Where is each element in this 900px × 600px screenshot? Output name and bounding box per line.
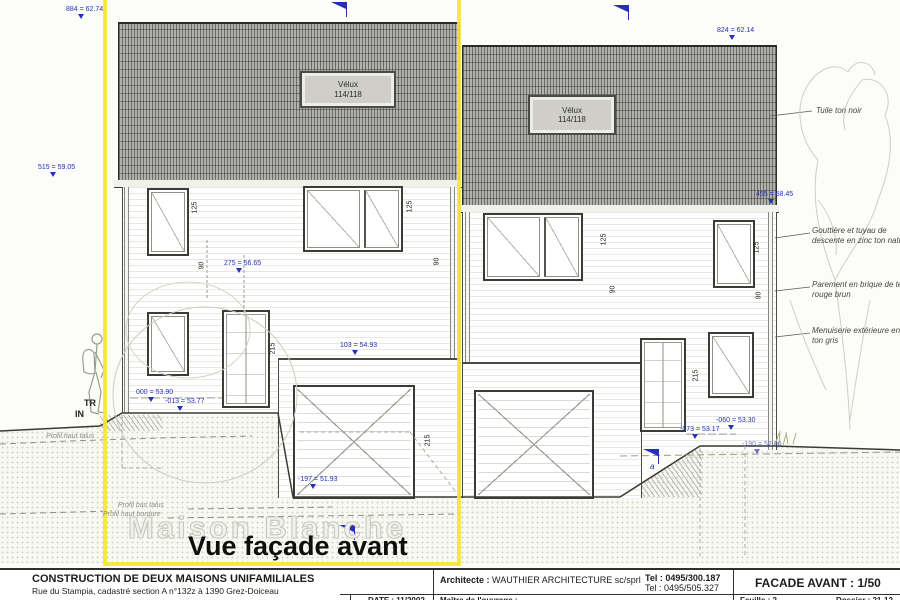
witness-lines — [207, 240, 244, 315]
annotation-roof-tile: Tuile ton noir — [816, 106, 900, 116]
dim-label: 125 — [601, 231, 608, 249]
dim-label: 215 — [270, 340, 277, 358]
level-arrow-icon — [728, 425, 734, 430]
level-marker-garage-floor: -197 = 51.93 — [298, 476, 338, 489]
level-marker-right-1: -060 = 53.30 — [716, 417, 756, 430]
client-label: Maître de l'ouvrage : — [440, 596, 517, 600]
level-marker-ridge-right: 824 = 62.14 — [717, 27, 754, 40]
level-marker-right-3: -190 = 52.00 — [742, 441, 782, 454]
profile-label-haut-talus: Profil haut talus — [46, 433, 94, 440]
dim-label: 215 — [425, 432, 432, 450]
level-arrow-icon — [310, 484, 316, 489]
level-arrow-icon — [729, 35, 735, 40]
dim-label: 125 — [192, 199, 199, 217]
level-marker-garage-roof: 103 = 54.93 — [340, 342, 377, 355]
highlight-line-bottom — [103, 562, 461, 566]
dim-label: 125 — [407, 198, 414, 216]
dim-label: 90 — [756, 287, 763, 305]
dim-label: 125 — [754, 239, 761, 257]
flag-marker-icon — [612, 5, 629, 21]
foundation-dashes-right — [700, 446, 745, 556]
foundation-dashes-left — [122, 415, 456, 492]
project-title: CONSTRUCTION DE DEUX MAISONS UNIFAMILIAL… — [32, 573, 314, 585]
architect-label: Architecte : — [440, 575, 490, 585]
dim-label: 215 — [693, 367, 700, 385]
highlight-line-left — [103, 0, 107, 566]
profile-label-bas-talus: Profil bas talus — [118, 502, 164, 509]
level-marker-right-2: -073 = 53.17 — [680, 426, 720, 439]
view-title: Vue façade avant — [188, 531, 408, 562]
level-marker-ridge-left: 884 = 62.74 — [66, 6, 103, 19]
level-dash-lines — [130, 398, 736, 434]
dim-label: 90 — [610, 281, 617, 299]
facade-drawing-sheet: Vélux 114/118 Vélux 114/118 — [0, 0, 900, 600]
level-arrow-icon — [692, 434, 698, 439]
dim-label: 90 — [434, 253, 441, 271]
level-marker-lintel: 275 = 56.65 — [224, 260, 261, 273]
level-arrow-icon — [177, 406, 183, 411]
level-marker-terrace: -013 = 53.77 — [165, 398, 205, 411]
project-address: Rue du Stampia, cadastré section A n°132… — [32, 586, 279, 596]
annotation-brick: Parement en brique de teinte rouge brun — [812, 280, 900, 301]
drawing-title: FACADE AVANT : 1/50 — [755, 576, 881, 590]
dim-label: 90 — [199, 257, 206, 275]
level-marker-eaves-left: 515 = 59.05 — [38, 164, 75, 177]
date-field: DATE : 11/2002 — [368, 596, 425, 600]
architect-line: Architecte : WAUTHIER ARCHITECTURE sc/sp… — [440, 575, 641, 585]
site-label-tr: TR — [84, 398, 96, 408]
level-arrow-icon — [352, 350, 358, 355]
flag-marker-icon — [330, 2, 347, 18]
site-label-in: IN — [75, 409, 84, 419]
level-arrow-icon — [148, 397, 154, 402]
level-arrow-icon — [50, 172, 56, 177]
phone-1: Tel : 0495/300.187 — [645, 573, 720, 583]
construction-arc-2 — [126, 282, 250, 378]
level-arrow-icon — [78, 14, 84, 19]
level-arrow-icon — [236, 268, 242, 273]
highlight-line-right — [457, 0, 461, 566]
title-block-divider — [733, 570, 734, 600]
annotation-joinery: Menuiserie extérieure en pvc ton gris — [812, 326, 900, 347]
level-arrow-icon — [768, 199, 774, 204]
dossier-number: Dossier : 21-12 — [836, 596, 893, 600]
title-block: CONSTRUCTION DE DEUX MAISONS UNIFAMILIAL… — [0, 568, 900, 600]
level-marker-eaves-right: 455 = 58.45 — [756, 191, 793, 204]
flag-marker-icon — [642, 449, 659, 465]
title-block-divider — [340, 594, 900, 595]
annotation-gutter: Gouttière et tuyau de descente en zinc t… — [812, 226, 900, 247]
title-block-divider — [433, 570, 434, 600]
level-arrow-icon — [754, 449, 760, 454]
phone-2: Tel : 0495/505.327 — [645, 583, 719, 593]
architect-name: WAUTHIER ARCHITECTURE sc/sprl — [492, 575, 641, 585]
sheet-number: Feuille : 2 — [740, 596, 777, 600]
